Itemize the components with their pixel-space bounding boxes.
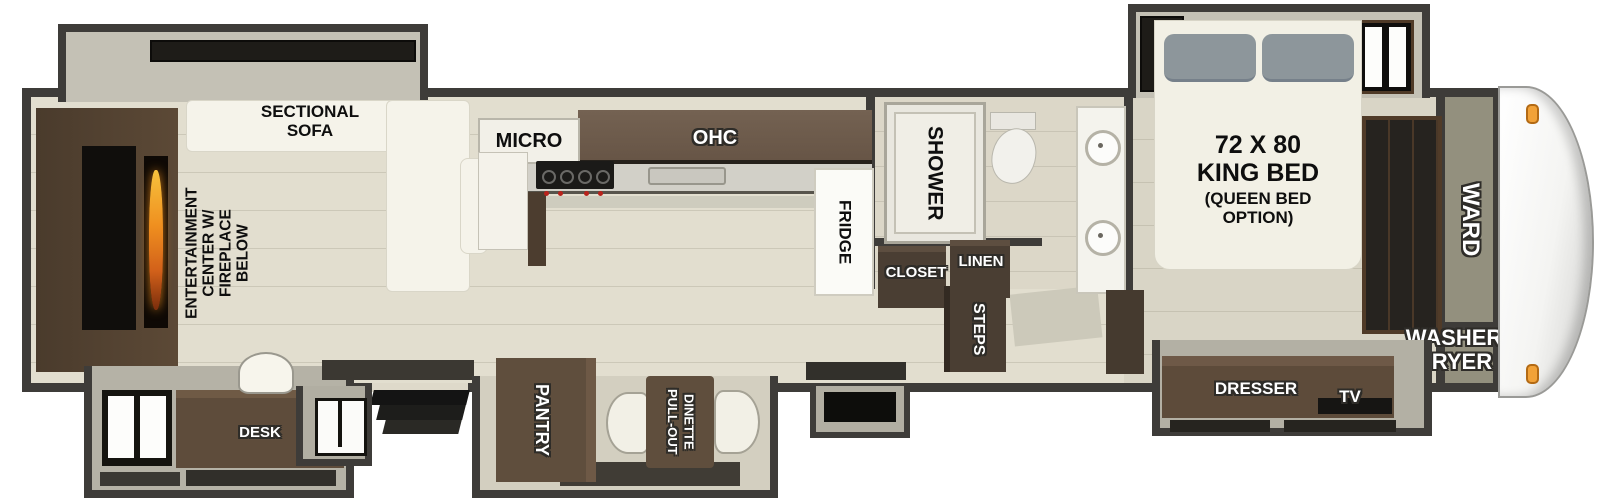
refrigerator: FRIDGE bbox=[814, 168, 874, 296]
marker-light-icon bbox=[1526, 104, 1539, 124]
rv-floorplan: ENTERTAINMENT CENTER W/ FIREPLACE BELOW … bbox=[0, 0, 1600, 501]
stove-knob-icon bbox=[544, 191, 549, 196]
white-cabinet bbox=[478, 152, 528, 250]
desk-slideout-floor-mat bbox=[100, 472, 180, 486]
burner-icon bbox=[560, 170, 574, 184]
linen-label: LINEN bbox=[948, 254, 1014, 271]
desk-chair bbox=[238, 352, 294, 394]
stove-cooktop bbox=[536, 161, 614, 189]
burner-icon bbox=[542, 170, 556, 184]
entry-steps-icon bbox=[370, 390, 470, 405]
shower: SHOWER bbox=[884, 102, 986, 244]
lower-wall-section bbox=[296, 386, 372, 466]
window-pane bbox=[1389, 27, 1406, 87]
wardrobe-sliding-doors bbox=[1362, 116, 1442, 334]
wall-window bbox=[824, 392, 896, 422]
dinette-chair bbox=[714, 390, 760, 454]
pull-out-dinette-table: PULL-OUT DINETTE bbox=[646, 376, 714, 468]
window-pane bbox=[140, 396, 166, 458]
pillow bbox=[1164, 34, 1256, 82]
stove-knob-icon bbox=[558, 191, 563, 196]
burner-icon bbox=[578, 170, 592, 184]
marker-light-icon bbox=[1526, 364, 1539, 384]
vanity bbox=[1076, 106, 1126, 294]
entry-steps-icon bbox=[376, 405, 466, 420]
bed-type-label: KING BED bbox=[1168, 160, 1348, 188]
front-cap bbox=[1498, 86, 1594, 398]
counter-window-inset bbox=[806, 362, 906, 380]
closet-label: CLOSET bbox=[874, 265, 958, 282]
sectional-sofa-chaise bbox=[386, 100, 470, 292]
desk-slideout-window bbox=[102, 390, 172, 466]
desk-slideout-floor-mat bbox=[186, 470, 336, 486]
hall-cabinet bbox=[1106, 290, 1144, 374]
lower-wall-section bbox=[810, 386, 910, 438]
window-mullion bbox=[338, 401, 342, 447]
dresser-slideout-window bbox=[1170, 420, 1270, 432]
stove-knob-icon bbox=[584, 191, 589, 196]
steps-label: STEPS bbox=[969, 303, 987, 355]
dinette-label-line2: DINETTE bbox=[681, 394, 695, 450]
bed-option-label: (QUEEN BED OPTION) bbox=[1168, 190, 1348, 227]
bedroom-steps: STEPS bbox=[944, 286, 1006, 372]
overhead-cabinet-label: OHC bbox=[680, 127, 750, 149]
microwave-label: MICRO bbox=[496, 130, 563, 152]
ward-label-wrap: WARD bbox=[1448, 160, 1492, 280]
entertainment-center-label-wrap: ENTERTAINMENT CENTER W/ FIREPLACE BELOW bbox=[153, 123, 283, 383]
sink-drain-icon bbox=[1098, 233, 1103, 238]
shower-label: SHOWER bbox=[923, 126, 946, 221]
bed-size-label: 72 X 80 bbox=[1168, 132, 1348, 160]
desk-label: DESK bbox=[239, 425, 281, 442]
pantry: PANTRY bbox=[496, 358, 596, 482]
entry-door-mat bbox=[322, 360, 474, 380]
entertainment-center-label: ENTERTAINMENT CENTER W/ FIREPLACE BELOW bbox=[184, 187, 252, 318]
sink-drain-icon bbox=[1098, 143, 1103, 148]
tv-screen bbox=[82, 146, 136, 330]
window-pane bbox=[1365, 27, 1382, 87]
refrigerator-label: FRIDGE bbox=[835, 200, 854, 264]
bedroom-window bbox=[1358, 20, 1414, 94]
sectional-sofa-label: SECTIONAL SOFA bbox=[240, 103, 380, 140]
wall-window bbox=[315, 398, 367, 456]
sink-icon bbox=[1085, 130, 1121, 166]
pantry-label: PANTRY bbox=[531, 384, 551, 456]
sofa-slideout-window bbox=[150, 40, 416, 62]
dinette-chair bbox=[606, 392, 650, 454]
lower-cabinet bbox=[528, 192, 546, 266]
window-pane bbox=[108, 396, 134, 458]
pillow bbox=[1262, 34, 1354, 82]
entry-steps-icon bbox=[382, 420, 461, 434]
burner-icon bbox=[596, 170, 610, 184]
dresser-slideout-window bbox=[1284, 420, 1396, 432]
ward-label: WARD bbox=[1457, 183, 1483, 256]
dinette-label-line1: PULL-OUT bbox=[665, 389, 679, 455]
dresser-tv-label: TV bbox=[1326, 388, 1374, 407]
stove-knob-icon bbox=[598, 191, 603, 196]
kitchen-sink bbox=[648, 167, 726, 185]
sofa-slideout bbox=[58, 24, 428, 102]
dresser-label: DRESSER bbox=[1206, 380, 1306, 399]
sink-icon bbox=[1085, 220, 1121, 256]
